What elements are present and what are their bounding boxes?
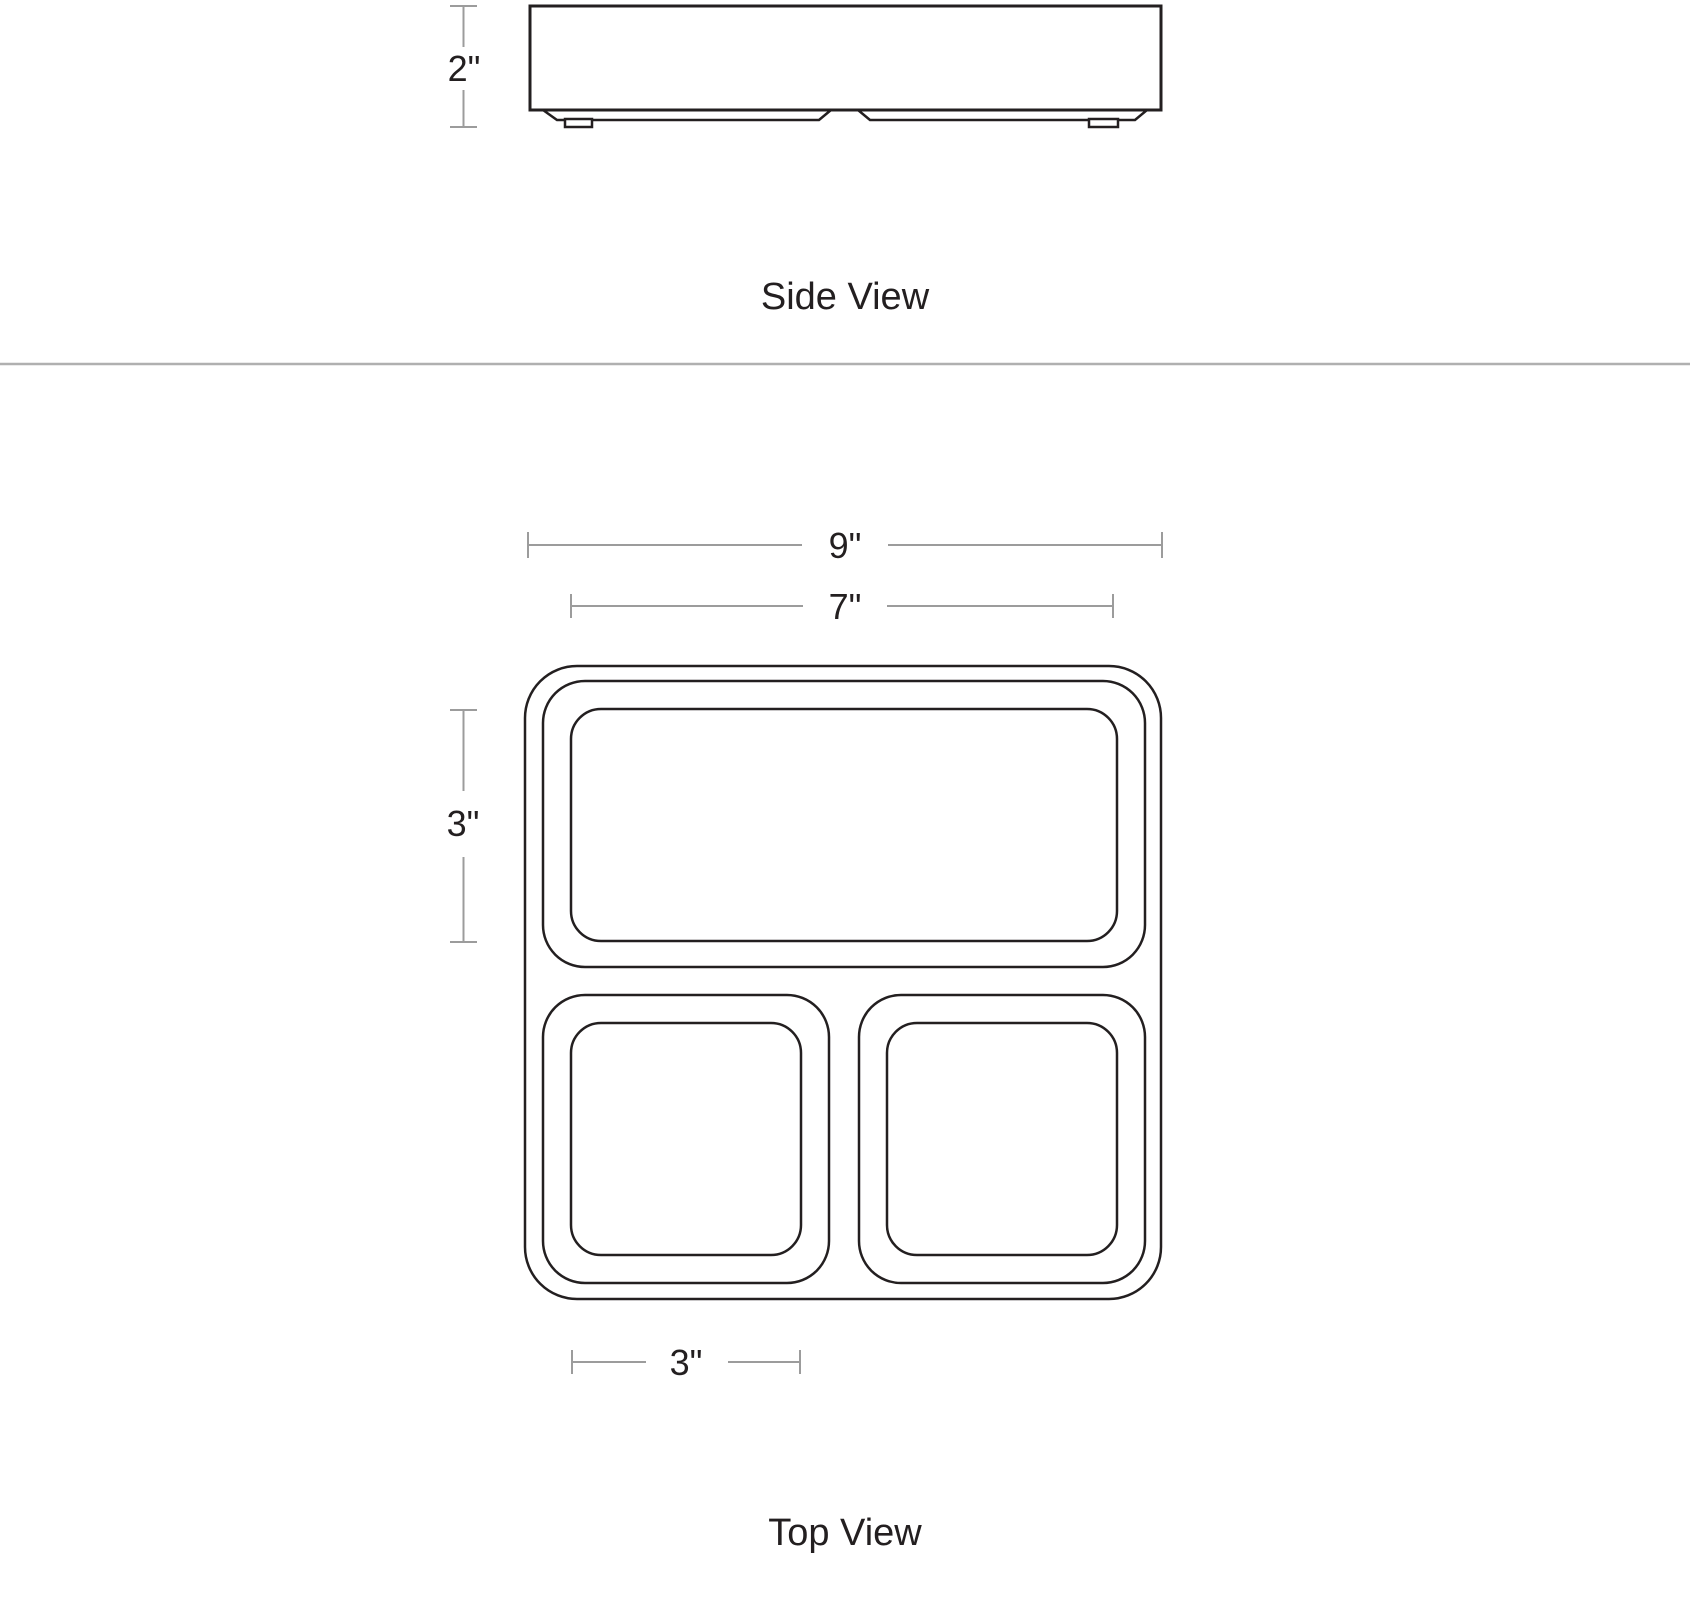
drawing-svg: 2" Side View 9" 7" (0, 0, 1690, 1602)
inner-width-dimension: 7" (571, 586, 1113, 627)
side-view-foot-left (565, 119, 592, 127)
compartment-depth-dimension-text: 3" (447, 803, 480, 844)
side-view-outline (530, 6, 1161, 110)
dimension-drawing-canvas: 2" Side View 9" 7" (0, 0, 1690, 1602)
overall-width-dimension-text: 9" (829, 525, 862, 566)
tray-outline (525, 666, 1161, 1299)
side-view-label: Side View (761, 276, 930, 318)
right-compartment-inner (887, 1023, 1117, 1255)
compartment-width-dimension: 3" (572, 1342, 800, 1383)
inner-width-dimension-text: 7" (829, 586, 862, 627)
side-view: 2" Side View (448, 6, 1161, 318)
top-view: 9" 7" (447, 525, 1162, 1554)
overall-width-dimension: 9" (528, 525, 1162, 566)
top-compartment-outer (543, 681, 1145, 967)
top-view-label: Top View (768, 1512, 922, 1554)
top-compartment-inner (571, 709, 1117, 941)
side-view-foot-right (1089, 119, 1118, 127)
compartment-width-dimension-text: 3" (670, 1342, 703, 1383)
left-compartment-outer (543, 995, 829, 1283)
height-dimension-text: 2" (448, 48, 481, 89)
left-compartment-inner (571, 1023, 801, 1255)
height-dimension: 2" (448, 6, 481, 127)
right-compartment-outer (859, 995, 1145, 1283)
compartment-depth-dimension: 3" (447, 710, 480, 942)
